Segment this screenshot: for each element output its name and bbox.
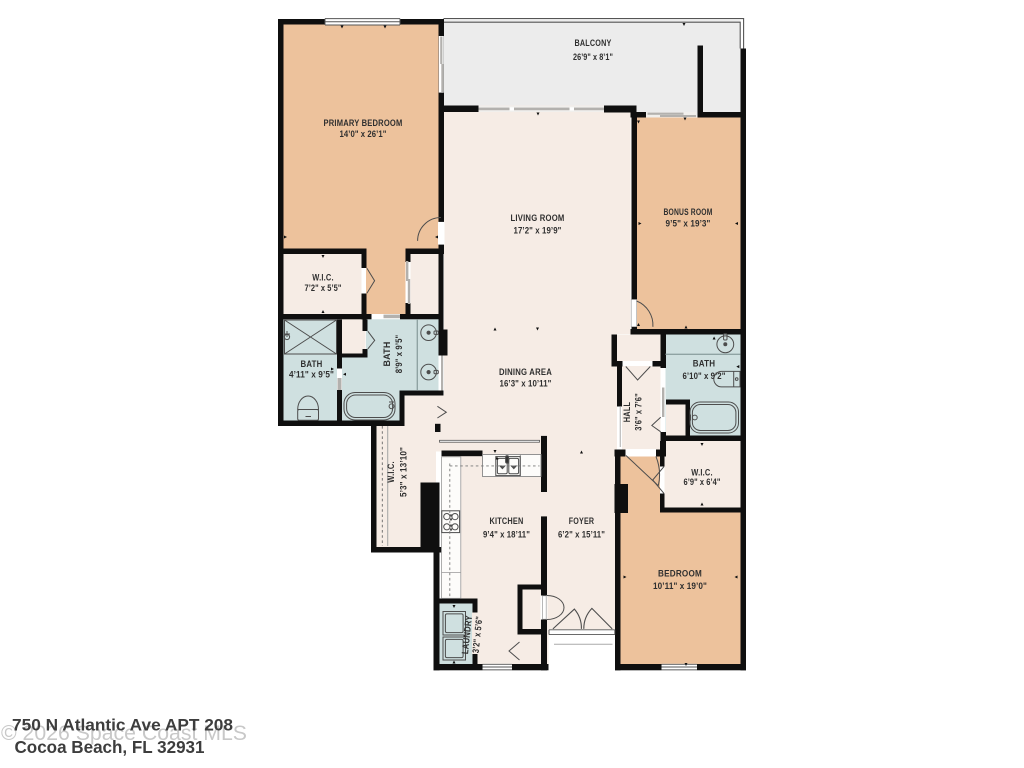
svg-text:BEDROOM: BEDROOM (658, 569, 702, 579)
svg-text:8’9" x 9’5": 8’9" x 9’5" (394, 335, 404, 374)
svg-text:3’6" x 7’6": 3’6" x 7’6" (634, 393, 644, 431)
svg-text:4’11" x 9’5": 4’11" x 9’5" (289, 369, 334, 379)
svg-text:6’9" x 6’4": 6’9" x 6’4" (684, 477, 721, 487)
svg-text:6’10" x 9’2": 6’10" x 9’2" (683, 371, 726, 381)
svg-text:BATH: BATH (382, 341, 392, 366)
svg-text:9’5" x 19’3": 9’5" x 19’3" (666, 219, 711, 229)
svg-text:BATH: BATH (301, 359, 323, 369)
svg-text:DINING AREA: DINING AREA (499, 367, 552, 377)
svg-text:5’3" x 13’10": 5’3" x 13’10" (399, 447, 409, 497)
svg-text:7’2" x 5’5": 7’2" x 5’5" (305, 283, 342, 293)
svg-text:BATH: BATH (693, 358, 716, 368)
svg-text:9’4" x 18’11": 9’4" x 18’11" (483, 529, 530, 539)
svg-text:FOYER: FOYER (569, 516, 595, 526)
svg-text:W.I.C.: W.I.C. (691, 468, 713, 478)
svg-text:BALCONY: BALCONY (575, 38, 612, 48)
svg-text:16’3" x 10’11": 16’3" x 10’11" (500, 379, 552, 389)
svg-text:Cocoa Beach, FL 32931: Cocoa Beach, FL 32931 (15, 737, 205, 757)
svg-text:6’2" x 15’11": 6’2" x 15’11" (558, 529, 605, 539)
svg-text:26’9" x 8’1": 26’9" x 8’1" (573, 52, 613, 62)
svg-text:14’0" x 26’1": 14’0" x 26’1" (340, 129, 387, 139)
svg-text:17’2" x 19’9": 17’2" x 19’9" (514, 226, 562, 236)
svg-text:PRIMARY BEDROOM: PRIMARY BEDROOM (324, 118, 403, 128)
svg-text:750 N Atlantic Ave APT 208: 750 N Atlantic Ave APT 208 (12, 716, 233, 735)
svg-text:BONUS ROOM: BONUS ROOM (664, 207, 713, 217)
svg-text:HALL: HALL (622, 402, 632, 423)
svg-text:10’11" x 19’0": 10’11" x 19’0" (653, 581, 707, 591)
svg-text:LIVING ROOM: LIVING ROOM (511, 213, 565, 223)
svg-text:W.I.C.: W.I.C. (386, 461, 396, 483)
svg-text:KITCHEN: KITCHEN (490, 516, 524, 526)
svg-text:W.I.C.: W.I.C. (312, 273, 334, 283)
